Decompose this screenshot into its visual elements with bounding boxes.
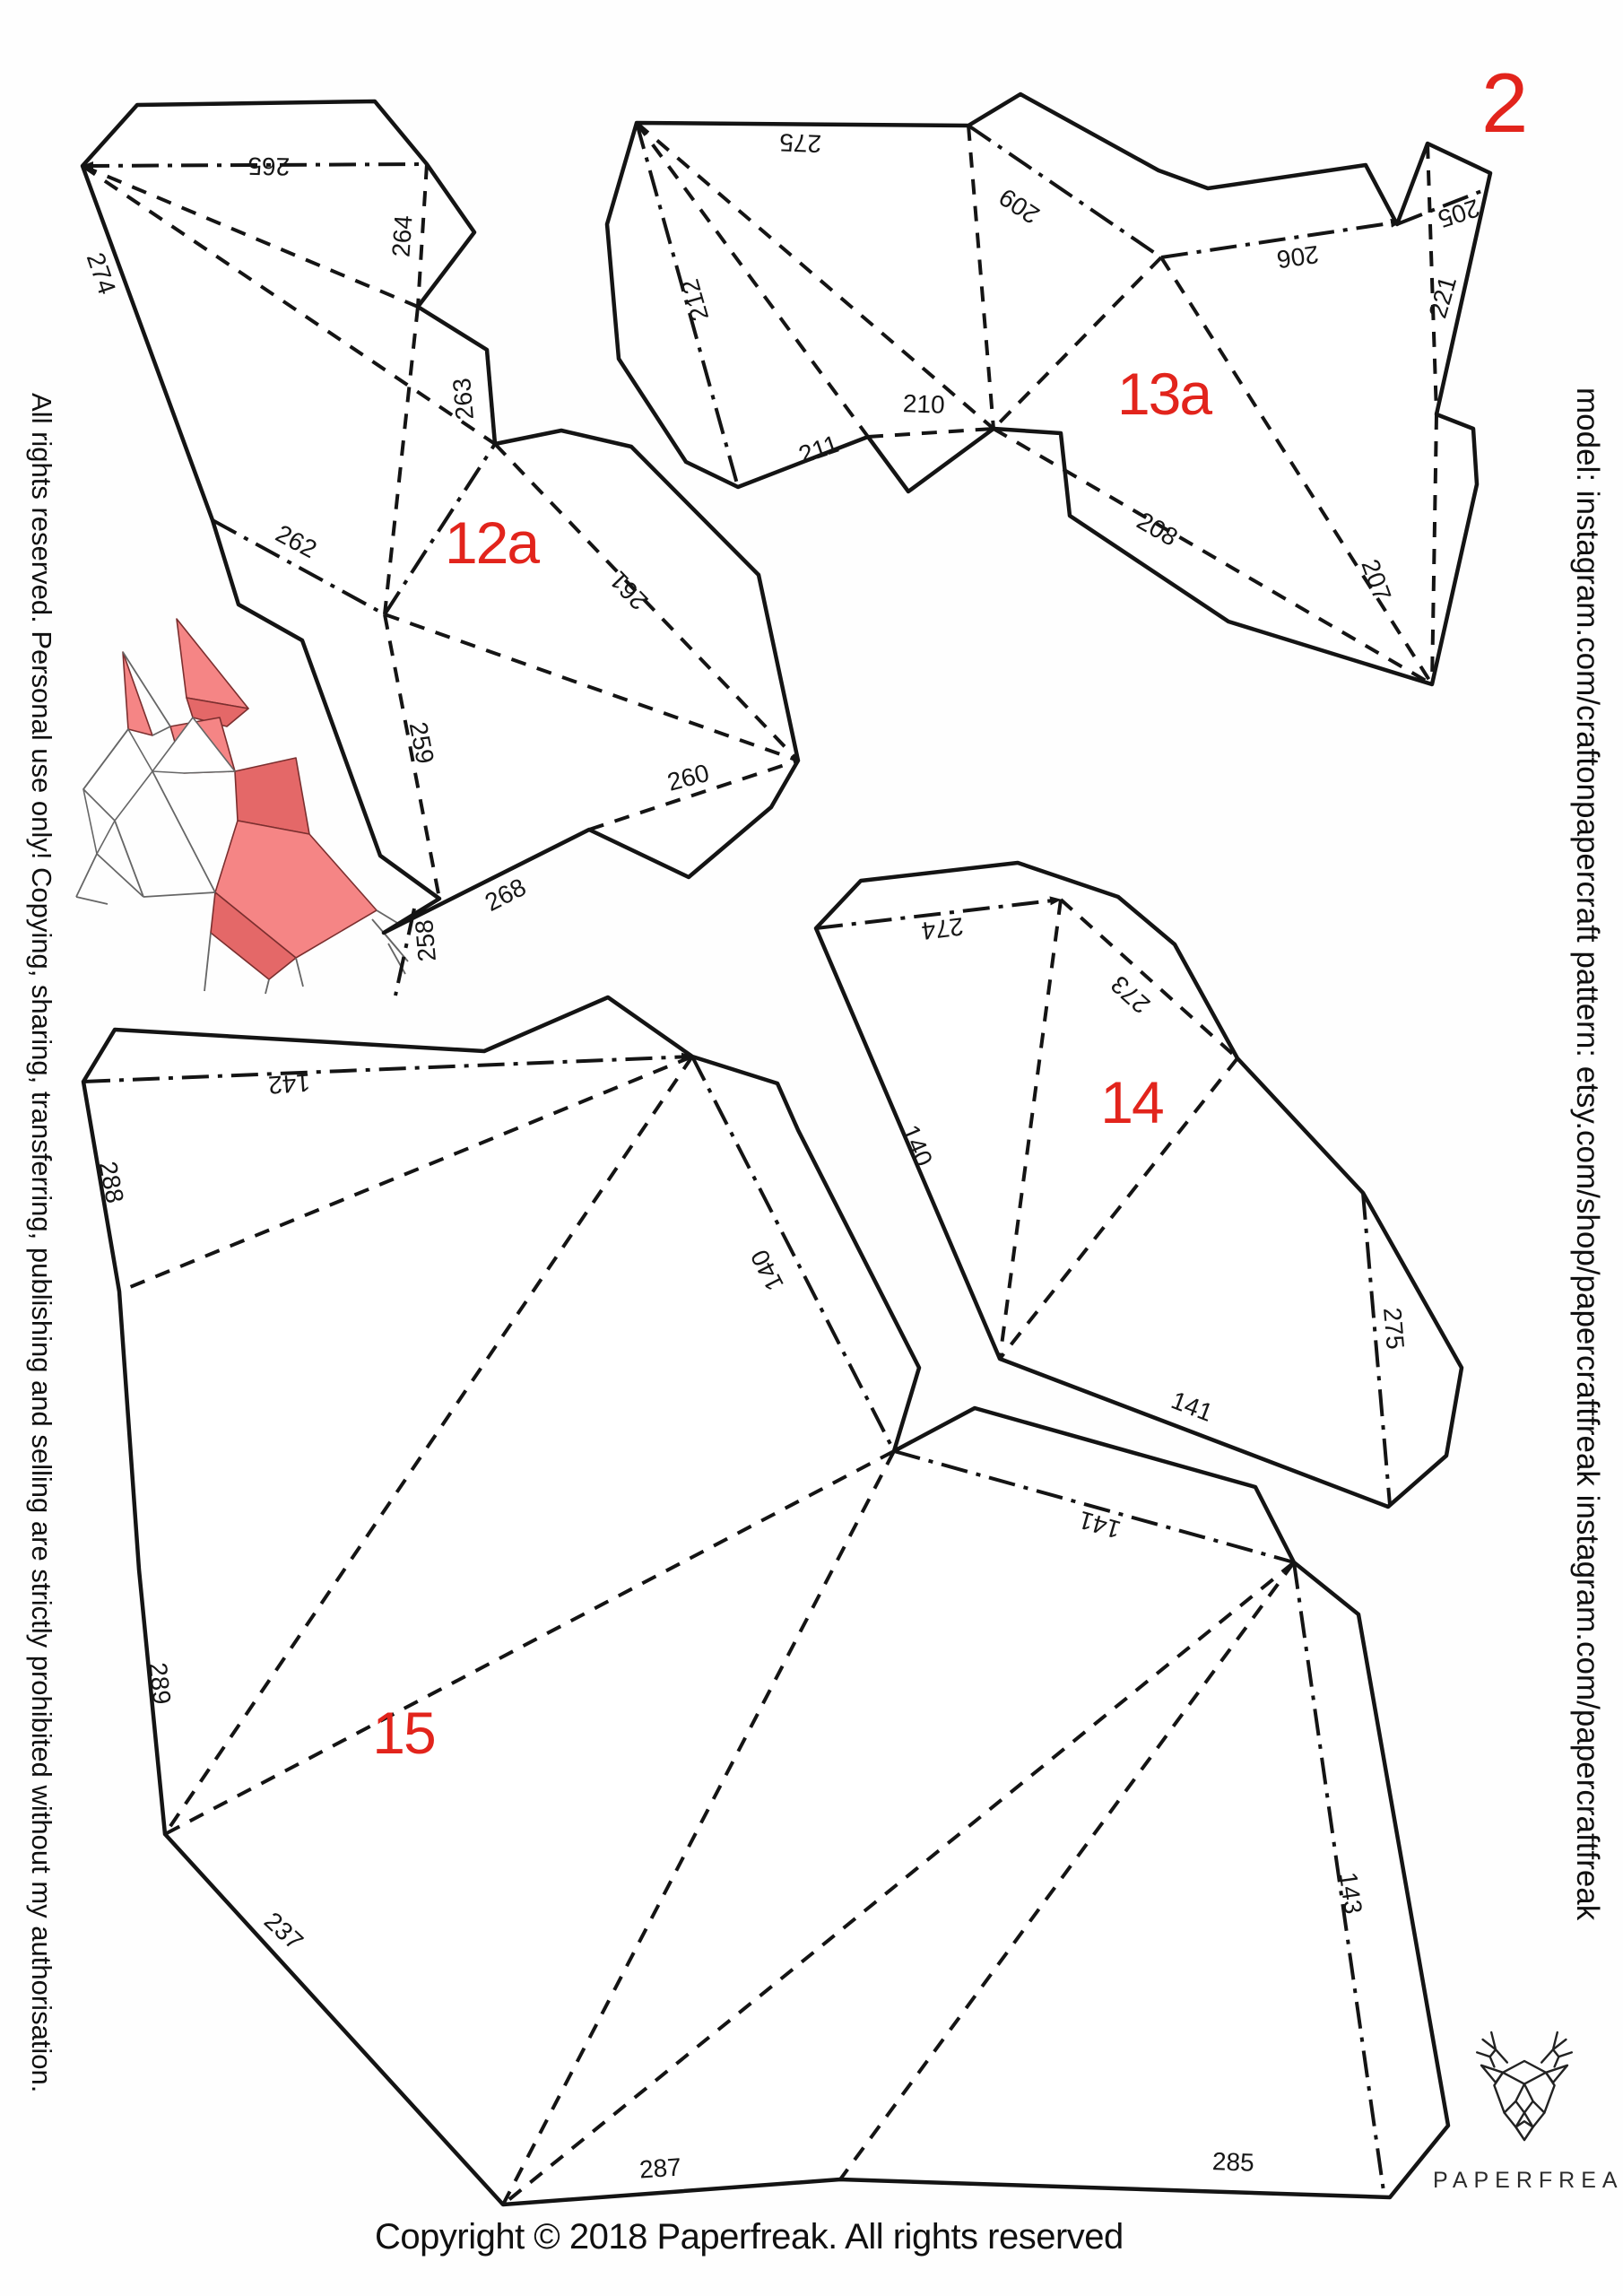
- edge-number-label: 264: [386, 214, 417, 258]
- edge-number-label: 287: [638, 2152, 682, 2183]
- edge-number-label: 274: [920, 912, 965, 944]
- preview-wire: [204, 933, 211, 991]
- preview-wire: [97, 854, 143, 897]
- edge-number-label: 143: [1334, 1870, 1367, 1916]
- edge-number-label: 206: [1275, 240, 1321, 274]
- edge-number-label: 142: [267, 1068, 311, 1099]
- preview-wire: [76, 854, 97, 897]
- preview-face: [123, 652, 152, 735]
- preview-wire: [152, 771, 215, 892]
- edge-number-label: 263: [447, 377, 479, 421]
- piece-number-label: 13a: [1117, 361, 1212, 427]
- piece-number-label: 15: [372, 1700, 434, 1766]
- piece-number-label: 14: [1100, 1069, 1163, 1135]
- preview-wire: [143, 892, 215, 897]
- preview-wire: [152, 726, 170, 735]
- edge-number-label: 210: [902, 389, 945, 419]
- piece-14: 27427314027514114: [816, 863, 1462, 1507]
- right-margin-links-text: model: instagram.com/craftonpapercraft p…: [1569, 387, 1605, 1920]
- piece-14-outline: [816, 863, 1462, 1507]
- deer-head-icon: [1453, 2018, 1596, 2161]
- logo-wordmark: PAPERFREAK: [1433, 2168, 1616, 2194]
- preview-wire: [265, 979, 269, 994]
- preview-face: [177, 619, 248, 709]
- edge-number-label: 258: [410, 918, 441, 962]
- piece-number-label: 12a: [445, 509, 540, 576]
- left-margin-copyright-text: All rights reserved. Personal use only! …: [25, 393, 57, 2092]
- preview-wire: [296, 958, 303, 987]
- edge-number-label: 275: [779, 128, 822, 158]
- pattern-svg: 26527426426326226125926026825812a2752122…: [0, 0, 1623, 2296]
- page-number: 2: [1481, 61, 1528, 145]
- edge-number-label: 289: [144, 1661, 177, 1706]
- footer-copyright: Copyright © 2018 Paperfreak. All rights …: [375, 2217, 1124, 2257]
- paperfreak-logo: PAPERFREAK: [1433, 2018, 1616, 2194]
- edge-number-label: 285: [1211, 2147, 1254, 2177]
- pattern-page: 26527426426326226125926026825812a2752122…: [0, 0, 1623, 2296]
- pattern-pieces-layer: 26527426426326226125926026825812a2752122…: [82, 94, 1490, 2205]
- preview-wire: [76, 897, 108, 904]
- edge-number-label: 275: [1378, 1307, 1410, 1351]
- edge-number-label: 265: [247, 152, 290, 181]
- preview-wire: [115, 821, 143, 897]
